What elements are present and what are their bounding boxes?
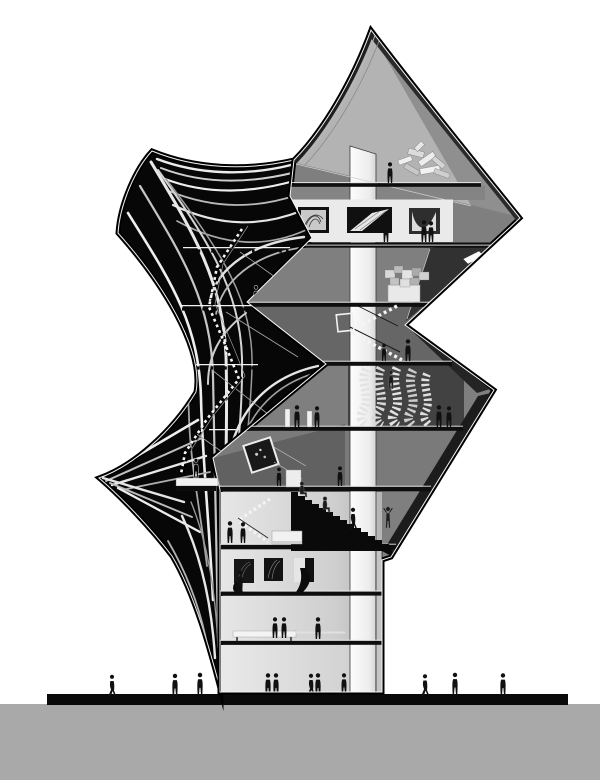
model-box: [390, 278, 399, 285]
figure-outdoor: [172, 674, 177, 696]
floor-slab: [219, 641, 382, 645]
floor-slab: [219, 592, 382, 596]
model-box: [400, 279, 410, 287]
architectural-section-illustration: [0, 0, 600, 780]
dark-artwork: [234, 559, 254, 583]
bench-leg: [236, 637, 238, 641]
ground-plane: [0, 704, 600, 780]
column-pedestal: [307, 411, 312, 427]
reception-desk-front: [272, 541, 302, 544]
figure-outdoor: [421, 674, 429, 695]
architectural-section-page: [0, 0, 600, 780]
picture-gallery-band: [288, 200, 453, 243]
model-box: [419, 272, 429, 280]
figure-outdoor: [197, 673, 202, 695]
column-pedestal: [285, 409, 290, 427]
bench-leg: [290, 637, 292, 641]
figure-outdoor: [500, 673, 505, 695]
floor-slab: [289, 183, 481, 187]
model-box: [394, 266, 403, 273]
ground-line: [47, 694, 568, 705]
tower-right-wall: [376, 548, 382, 692]
figure-outdoor: [452, 673, 457, 695]
model-box: [410, 278, 419, 285]
display-pedestal: [286, 470, 301, 487]
bench: [233, 631, 296, 637]
dark-artwork: [264, 558, 283, 581]
landing-deck: [176, 478, 218, 486]
model-box: [385, 270, 395, 278]
landing-underside: [176, 486, 216, 491]
model-pedestal: [388, 285, 420, 302]
model-box: [402, 270, 413, 279]
room-roof-gallery: [285, 186, 485, 200]
figure-outdoor: [108, 675, 116, 696]
